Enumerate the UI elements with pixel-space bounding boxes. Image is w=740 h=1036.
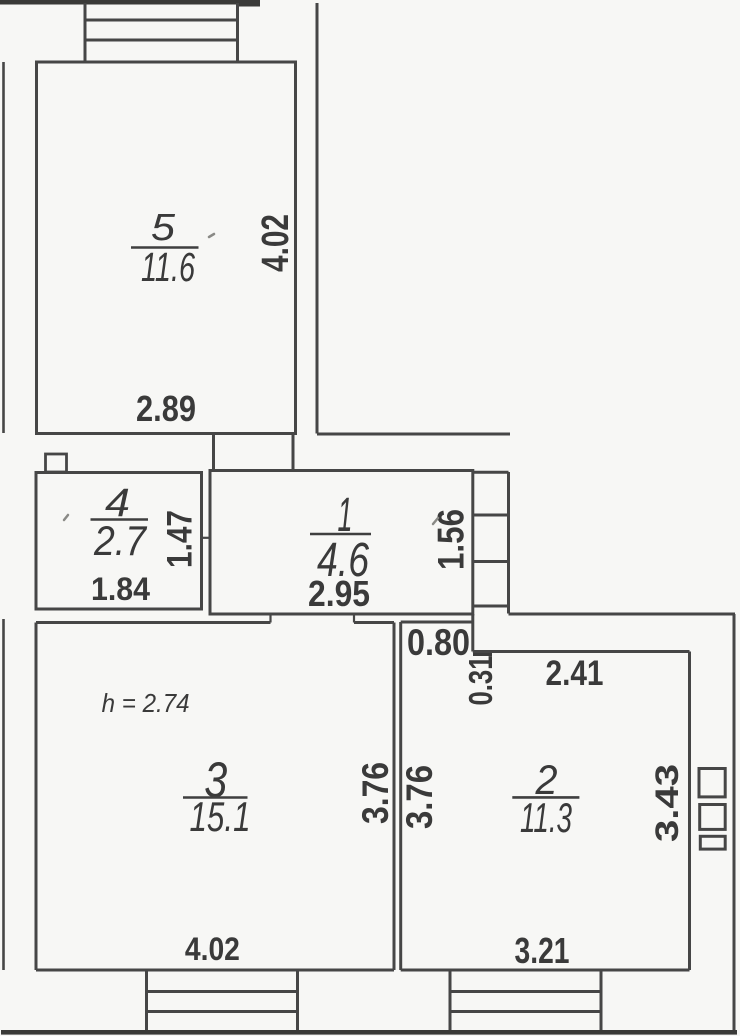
svg-text:3.76: 3.76: [399, 765, 440, 829]
svg-text:11.3: 11.3: [520, 794, 572, 841]
svg-text:3.43: 3.43: [649, 764, 685, 842]
svg-text:5: 5: [151, 207, 176, 249]
svg-text:4.02: 4.02: [255, 214, 297, 272]
svg-text:h = 2.74: h = 2.74: [102, 688, 190, 718]
svg-text:3.76: 3.76: [355, 762, 396, 824]
svg-text:4.02: 4.02: [185, 931, 240, 967]
svg-text:2.95: 2.95: [308, 573, 370, 614]
svg-text:15.1: 15.1: [190, 793, 251, 840]
svg-text:1.47: 1.47: [161, 510, 200, 568]
svg-text:11.6: 11.6: [141, 244, 195, 290]
svg-text:2.41: 2.41: [546, 654, 604, 693]
svg-text:2.7: 2.7: [93, 517, 147, 564]
svg-text:2.89: 2.89: [136, 388, 196, 429]
svg-text:0.31: 0.31: [462, 656, 499, 706]
svg-text:1.84: 1.84: [91, 571, 150, 607]
svg-text:3.21: 3.21: [515, 930, 570, 971]
svg-text:0.80: 0.80: [407, 622, 470, 663]
